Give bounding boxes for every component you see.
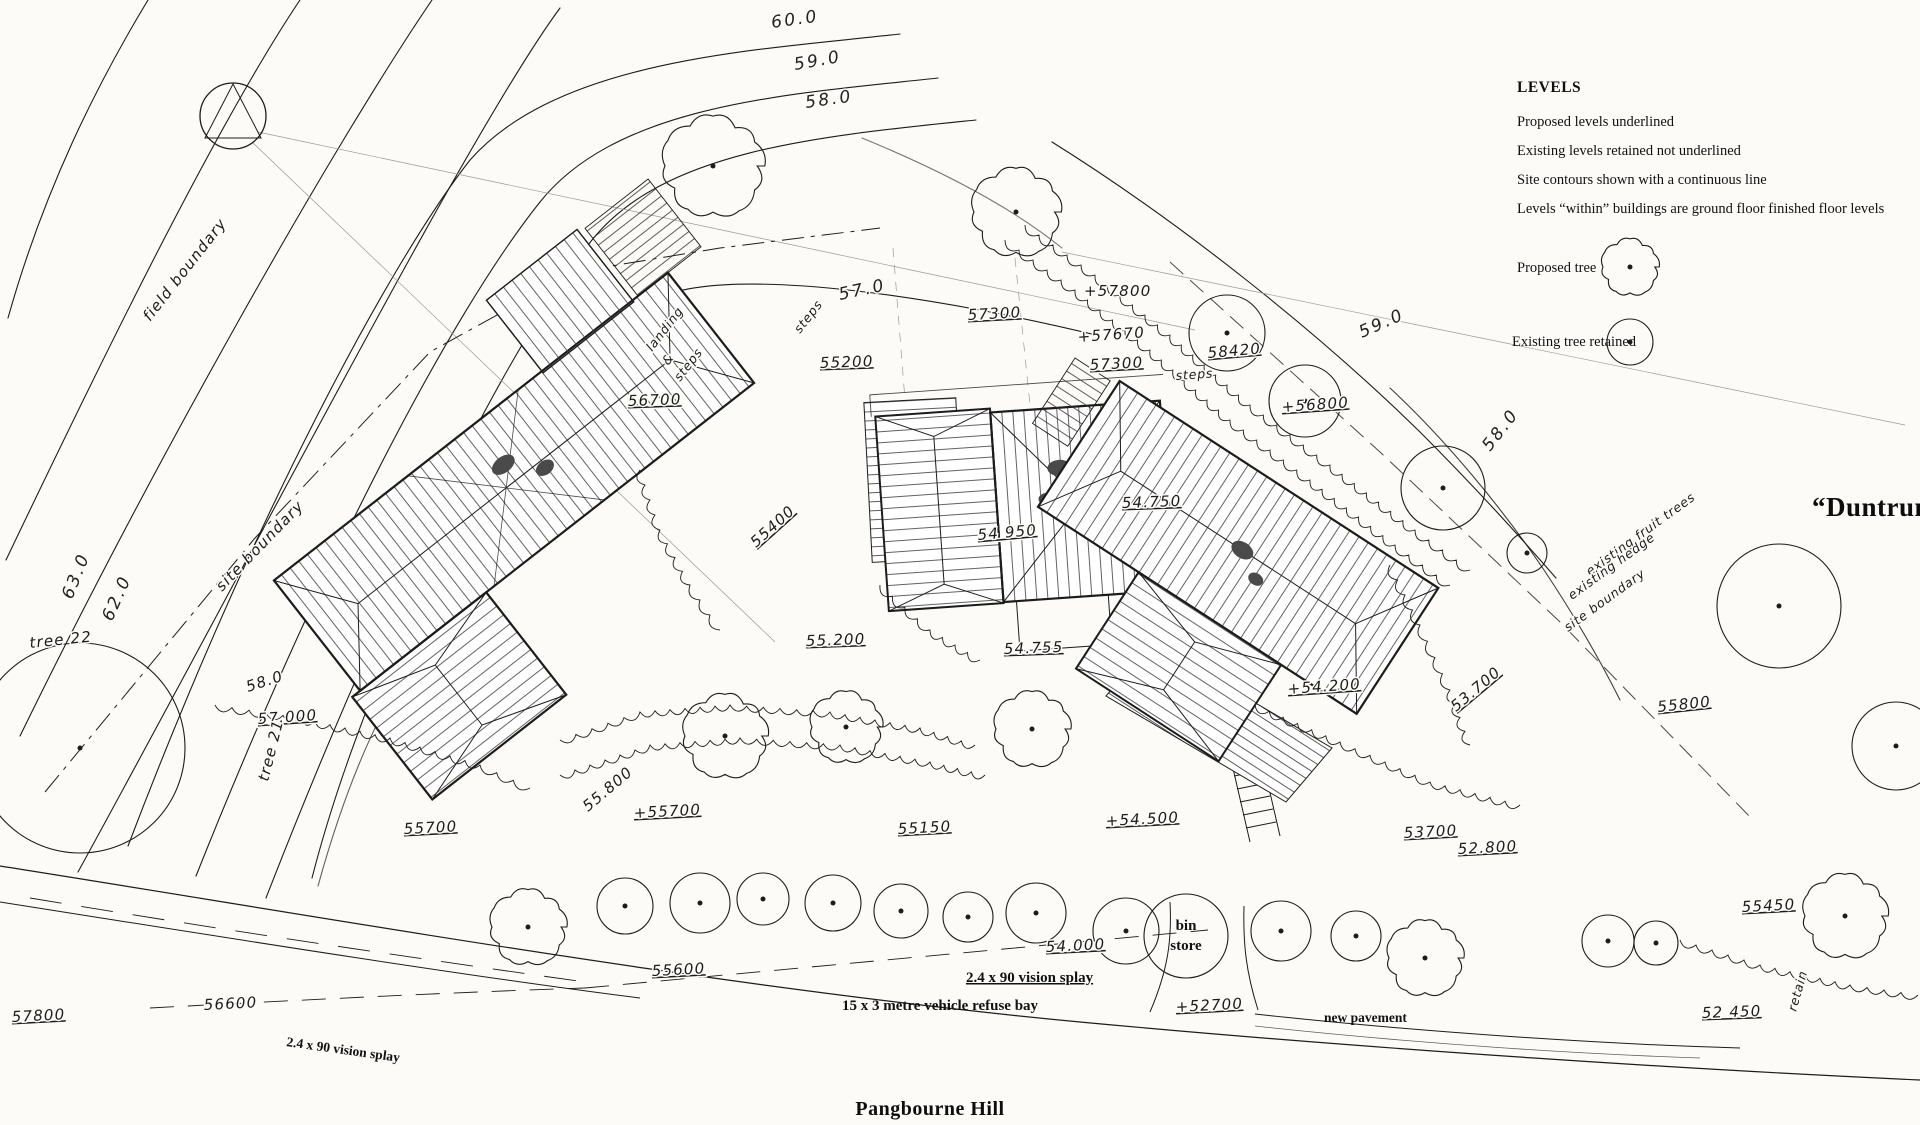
existing-tree-symbol [1582,915,1634,967]
level-label: 57800 [11,1005,66,1026]
contour-label: 59.0 [792,47,843,75]
proposed-tree-symbol [972,167,1062,256]
level-label: 53.700 [1447,663,1504,715]
contour-label: 62.0 [98,572,136,624]
level-label: 58420 [1207,339,1262,362]
level-label: +55700 [633,800,701,822]
level-label: 54.000 [1045,935,1106,956]
proposed-tree-symbol [994,691,1071,767]
existing-tree-symbol [1093,898,1159,964]
proposed-tree-symbol [662,115,765,216]
annotation-label: steps [791,297,826,336]
level-label: 58.0 [244,667,286,696]
annotation-label: retain [1784,969,1810,1013]
annotation-label: steps [1175,365,1214,383]
level-label: 55600 [651,959,706,980]
level-label: 55150 [897,817,952,838]
driveway-kerb [1244,906,1258,1010]
contour-label: 58.0 [804,86,854,112]
bin-store-circle [1144,894,1228,978]
level-label: 55450 [1741,895,1796,916]
contour-label: 63.0 [58,550,94,602]
level-label: 53700 [1403,821,1458,842]
proposed-tree-symbol [1803,873,1889,957]
note-label: 2.4 x 90 vision splay [966,970,1094,986]
level-label: +52700 [1175,994,1243,1016]
level-label: 57300 [967,303,1022,324]
vision-splay-line [585,930,1208,988]
note-label: 2.4 x 90 vision splay [286,1034,402,1065]
legend-heading: LEVELS [1517,79,1581,96]
level-label: 54.755 [1004,638,1064,658]
north-symbol [200,83,266,149]
note-label: bin [1176,918,1198,934]
existing-tree-symbol [805,875,861,931]
level-label: 55800 [1657,692,1712,716]
level-label: field boundary [139,215,230,325]
existing-tree-symbol [1717,544,1841,668]
level-label: 52 450 [1702,1002,1762,1022]
site-plan-canvas: LEVELS Proposed levels underlined Existi… [0,0,1920,1125]
level-label: 56600 [203,993,258,1014]
existing-tree-symbol [670,873,730,933]
level-label: +54.500 [1105,808,1179,830]
existing-tree-symbol [597,878,653,934]
level-label: 55400 [747,502,799,551]
contour-label: 57.0 [837,275,888,305]
level-label: 55200 [820,352,874,372]
legend-existing-tree-label: Existing tree retained [1512,334,1637,350]
legend-line: Proposed levels underlined [1517,114,1675,130]
driveway-kerb [1150,902,1170,1012]
existing-tree-symbol [1006,883,1066,943]
level-label: 56700 [628,390,682,410]
level-label: 55700 [403,817,458,838]
existing-tree-symbol [1331,911,1381,961]
contour-label: 58.0 [1478,405,1523,455]
level-label: +57800 [1084,282,1152,300]
proposed-tree-symbol [683,693,769,777]
existing-tree-symbol [1507,533,1547,573]
level-label: 54.750 [1122,492,1182,512]
legend-line: Site contours shown with a continuous li… [1517,172,1767,188]
site-name: “Duntrune” [1812,492,1920,522]
existing-tree-symbol [1634,921,1678,965]
legend-line: Levels “within” buildings are ground flo… [1517,201,1885,217]
road-name: Pangbourne Hill [855,1098,1004,1120]
existing-tree-symbol [0,643,185,853]
existing-tree-symbol [1251,901,1311,961]
contour-lines [6,0,1620,898]
proposed-tree-symbol [490,889,567,965]
proposed-tree-symbol [1387,920,1464,996]
legend-proposed-tree-label: Proposed tree [1517,260,1596,276]
note-label: 15 x 3 metre vehicle refuse bay [842,998,1039,1014]
level-label: 55.200 [806,630,866,650]
existing-tree-symbol [1852,702,1920,790]
level-label: +57670 [1077,323,1146,346]
contour-label: 60.0 [770,6,820,32]
proposed-tree-symbol [1601,238,1659,295]
existing-tree-symbol [737,873,789,925]
legend: LEVELS Proposed levels underlined Existi… [1512,79,1885,350]
level-label: 52.800 [1457,837,1518,858]
existing-tree-symbol [1401,446,1485,530]
existing-tree-symbol [943,892,993,942]
contour-label: 59.0 [1356,305,1408,343]
note-label: new pavement [1324,1010,1407,1025]
site-plan-sheet: LEVELS Proposed levels underlined Existi… [0,0,1920,1125]
level-label: 57300 [1089,353,1144,374]
note-label: store [1170,938,1202,954]
existing-tree-symbol [874,884,928,938]
level-label: tree 22 [29,628,93,652]
legend-line: Existing levels retained not underlined [1517,143,1742,159]
